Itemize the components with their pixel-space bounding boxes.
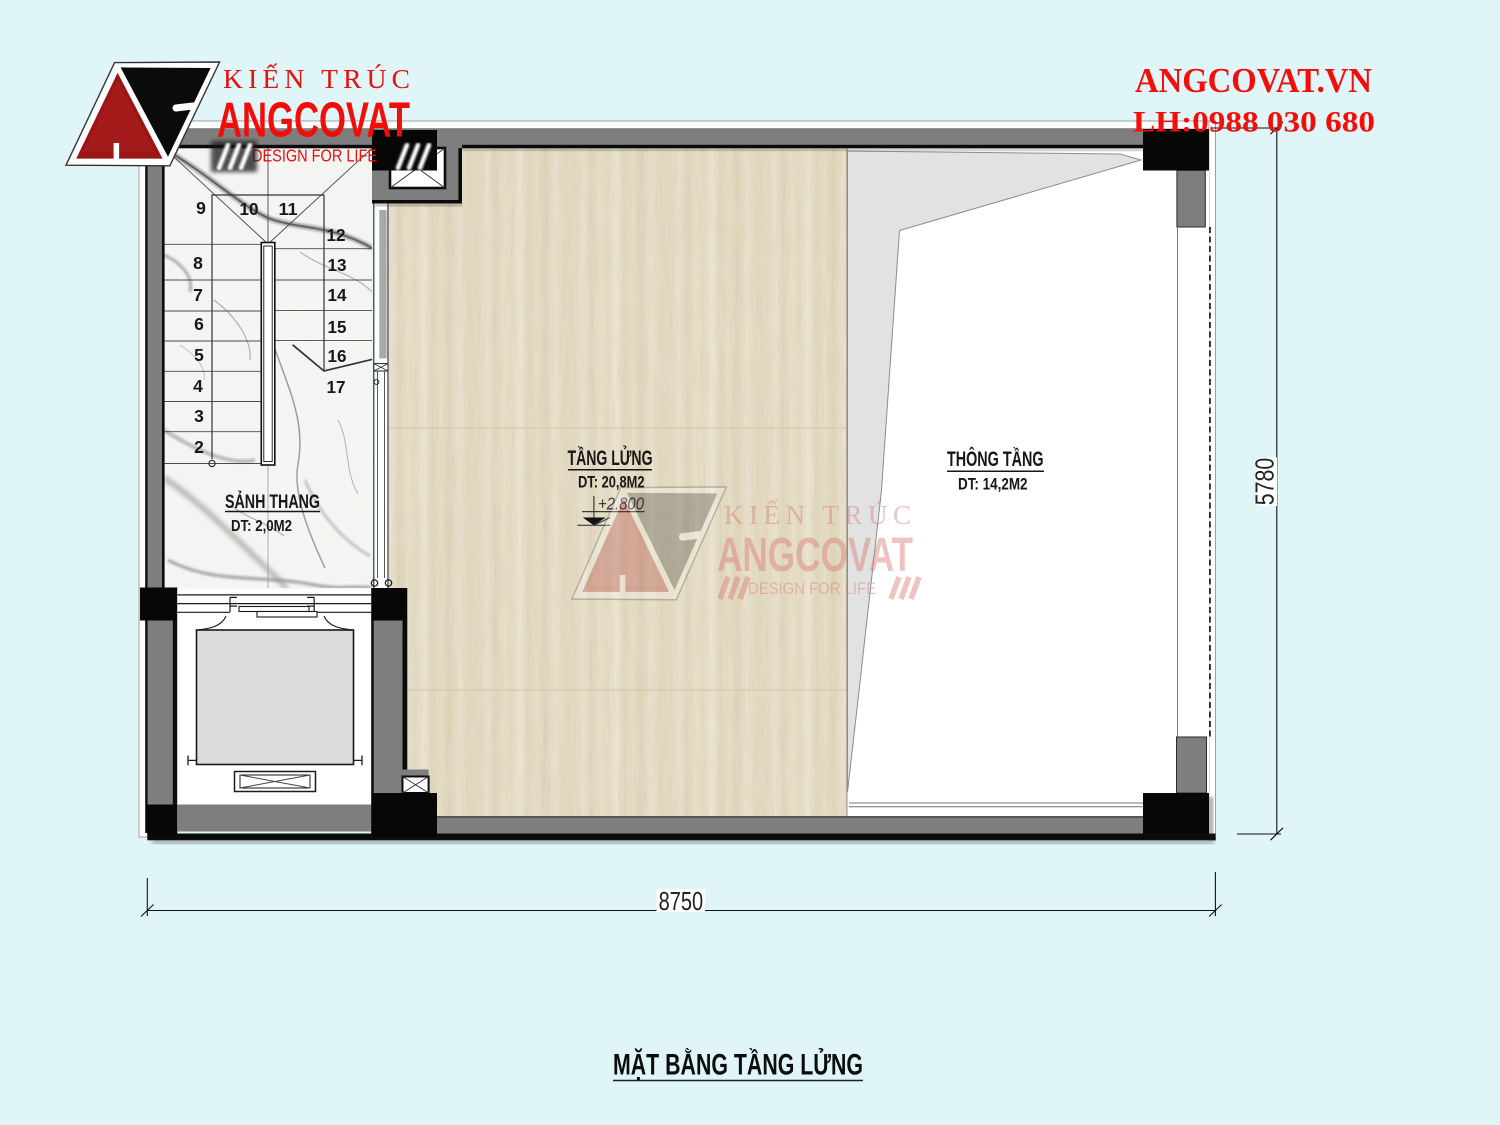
svg-text:MẶT BẰNG TẦNG LỬNG: MẶT BẰNG TẦNG LỬNG bbox=[613, 1048, 863, 1082]
svg-text:DESIGN FOR LIFE: DESIGN FOR LIFE bbox=[748, 579, 876, 598]
svg-text:LH:0988 030 680: LH:0988 030 680 bbox=[1133, 106, 1375, 139]
svg-text:14: 14 bbox=[328, 285, 347, 305]
svg-text:DT: 14,2M2: DT: 14,2M2 bbox=[958, 476, 1028, 494]
svg-text:8: 8 bbox=[193, 253, 203, 273]
svg-text:15: 15 bbox=[328, 317, 347, 337]
svg-text:17: 17 bbox=[327, 377, 346, 397]
svg-text:ANGCOVAT: ANGCOVAT bbox=[717, 529, 913, 582]
svg-text:10: 10 bbox=[240, 199, 259, 219]
svg-text:DESIGN FOR LIFE: DESIGN FOR LIFE bbox=[252, 146, 377, 166]
svg-text:DT: 2,0M2: DT: 2,0M2 bbox=[231, 518, 292, 535]
svg-text:5780: 5780 bbox=[1250, 458, 1280, 506]
svg-text:6: 6 bbox=[194, 314, 204, 334]
svg-text:9: 9 bbox=[196, 198, 206, 218]
svg-text:ANGCOVAT.VN: ANGCOVAT.VN bbox=[1135, 62, 1372, 100]
svg-text:11: 11 bbox=[279, 199, 298, 219]
svg-text:5: 5 bbox=[194, 345, 204, 365]
svg-text:12: 12 bbox=[327, 225, 346, 245]
svg-text:3: 3 bbox=[194, 406, 204, 426]
svg-text:TẦNG LỬNG: TẦNG LỬNG bbox=[568, 446, 653, 470]
svg-text:7: 7 bbox=[193, 285, 203, 305]
svg-text:8750: 8750 bbox=[659, 886, 704, 916]
svg-text:SẢNH THANG: SẢNH THANG bbox=[225, 490, 320, 513]
svg-text:16: 16 bbox=[328, 346, 347, 366]
svg-text:ANGCOVAT: ANGCOVAT bbox=[217, 94, 410, 148]
svg-text:2: 2 bbox=[194, 437, 204, 457]
svg-text:13: 13 bbox=[328, 255, 347, 275]
svg-text:THÔNG TẦNG: THÔNG TẦNG bbox=[947, 447, 1044, 471]
svg-text:4: 4 bbox=[193, 376, 203, 396]
